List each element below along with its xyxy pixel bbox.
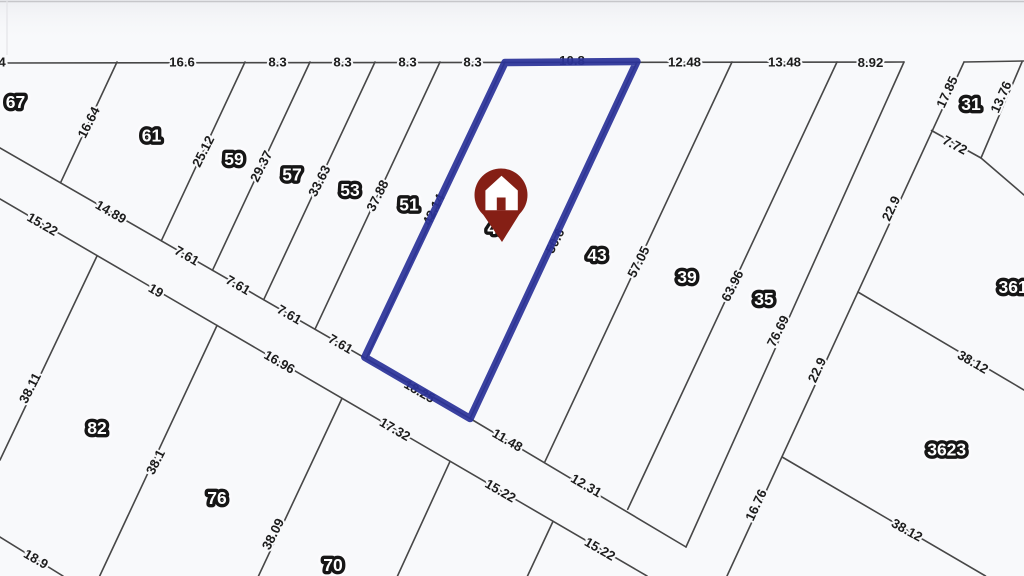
svg-text:35: 35	[754, 289, 774, 309]
svg-text:51: 51	[399, 195, 419, 215]
svg-text:8.3: 8.3	[333, 55, 351, 70]
svg-text:3614: 3614	[999, 277, 1024, 297]
svg-text:57: 57	[282, 165, 301, 185]
svg-text:31: 31	[961, 94, 981, 114]
svg-text:53: 53	[340, 180, 360, 200]
svg-text:59: 59	[224, 149, 244, 169]
svg-text:70: 70	[323, 555, 343, 575]
svg-text:12.48: 12.48	[668, 55, 701, 70]
svg-text:8.3: 8.3	[268, 55, 286, 70]
svg-text:67: 67	[6, 92, 25, 112]
svg-text:8.3: 8.3	[463, 55, 481, 70]
svg-text:8.92: 8.92	[858, 55, 884, 70]
svg-text:13.48: 13.48	[768, 55, 801, 70]
svg-text:39: 39	[677, 267, 697, 287]
svg-text:3623: 3623	[927, 440, 966, 460]
svg-text:8.3: 8.3	[398, 55, 416, 70]
svg-text:76: 76	[207, 488, 227, 508]
svg-text:61: 61	[142, 126, 162, 146]
svg-text:16.6: 16.6	[169, 55, 195, 70]
svg-text:4: 4	[0, 55, 6, 70]
svg-text:43: 43	[587, 245, 607, 265]
svg-text:82: 82	[87, 418, 107, 438]
